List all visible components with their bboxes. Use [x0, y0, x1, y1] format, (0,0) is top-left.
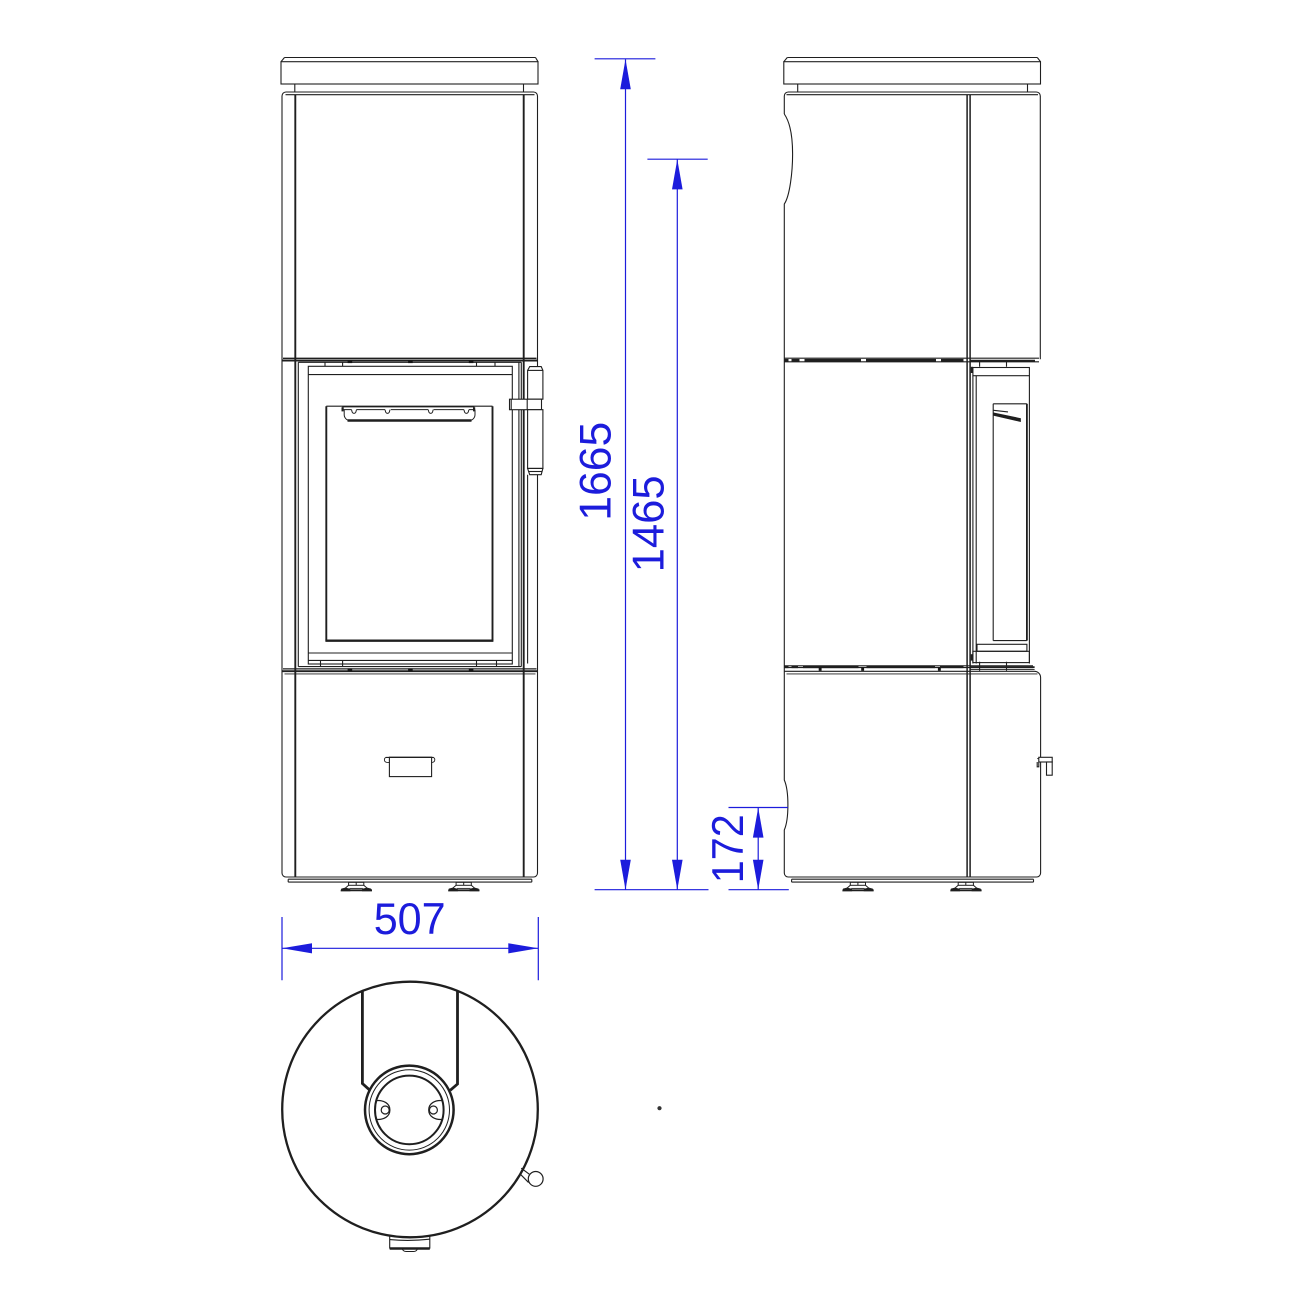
svg-text:1465: 1465 — [625, 475, 674, 572]
svg-text:172: 172 — [704, 814, 753, 883]
svg-text:507: 507 — [374, 895, 446, 944]
svg-text:1665: 1665 — [572, 422, 621, 521]
